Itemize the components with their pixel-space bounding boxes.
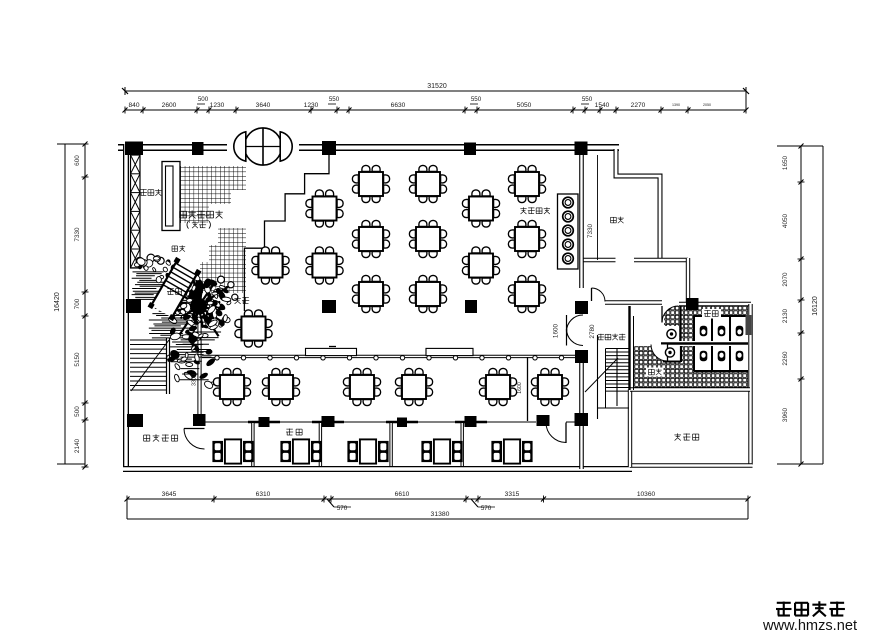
svg-text:6310: 6310 [256,491,271,498]
svg-text:1650: 1650 [782,155,789,170]
svg-text:700: 700 [74,298,81,309]
svg-text:570: 570 [337,505,348,512]
svg-text:550: 550 [471,96,482,103]
svg-text:2780: 2780 [589,324,596,339]
svg-text:31380: 31380 [431,511,450,518]
svg-text:3315: 3315 [505,491,520,498]
svg-text:2070: 2070 [782,272,789,287]
svg-text:1600: 1600 [553,323,560,338]
svg-text:7330: 7330 [74,227,81,242]
svg-text:2050: 2050 [703,103,711,107]
svg-text:7330: 7330 [587,223,594,238]
svg-text:4050: 4050 [782,213,789,228]
svg-text:5150: 5150 [74,352,81,367]
svg-text:550: 550 [582,96,593,103]
svg-text:840: 840 [128,102,139,109]
svg-text:570: 570 [481,505,492,512]
svg-text:1390: 1390 [672,103,680,107]
svg-text:2270: 2270 [631,102,646,109]
svg-text:6630: 6630 [391,102,406,109]
svg-text:1230: 1230 [210,102,225,109]
svg-text:500: 500 [74,406,81,417]
svg-text:1600: 1600 [517,382,523,394]
svg-text:500: 500 [198,96,209,103]
svg-text:10360: 10360 [637,491,656,498]
svg-text:2130: 2130 [782,308,789,323]
svg-text:3300: 3300 [192,374,198,386]
svg-text:5050: 5050 [517,102,532,109]
svg-text:www.hmzs.net: www.hmzs.net [762,618,857,634]
svg-text:550: 550 [329,96,340,103]
svg-text:2140: 2140 [74,438,81,453]
svg-text:600: 600 [74,155,81,166]
svg-text:31520: 31520 [427,83,447,90]
svg-text:3960: 3960 [782,407,789,422]
svg-text:1540: 1540 [595,102,610,109]
svg-text:6610: 6610 [395,491,410,498]
svg-text:2260: 2260 [782,351,789,366]
svg-text:16120: 16120 [812,296,819,316]
svg-text:1230: 1230 [304,102,319,109]
svg-text:3645: 3645 [162,491,177,498]
svg-text:3640: 3640 [256,102,271,109]
svg-text:16420: 16420 [54,292,61,312]
svg-text:2600: 2600 [162,102,177,109]
